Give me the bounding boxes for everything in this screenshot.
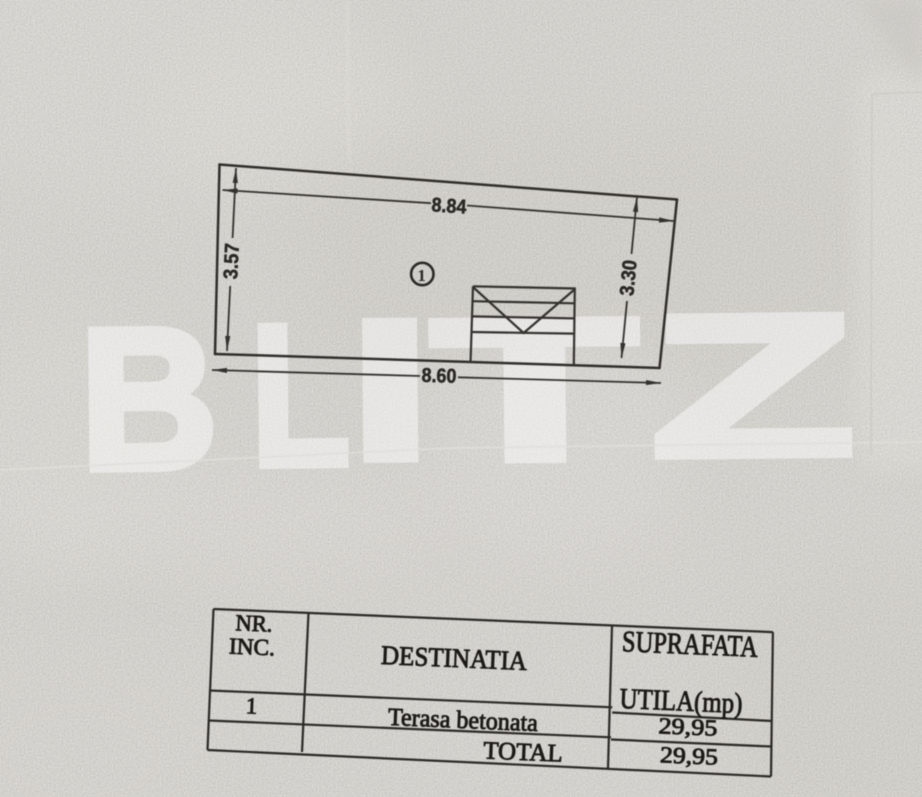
svg-text:TOTAL: TOTAL xyxy=(483,737,564,767)
svg-text:NR.: NR. xyxy=(235,610,273,637)
svg-text:SUPRAFATA: SUPRAFATA xyxy=(621,625,759,664)
svg-text:3.57: 3.57 xyxy=(220,243,244,280)
svg-text:B: B xyxy=(79,286,219,512)
svg-text:1: 1 xyxy=(245,693,258,718)
svg-text:DESTINATIA: DESTINATIA xyxy=(380,640,528,676)
svg-text:T: T xyxy=(431,276,639,503)
svg-text:L: L xyxy=(250,282,351,508)
svg-text:8.84: 8.84 xyxy=(431,194,468,218)
svg-text:8.60: 8.60 xyxy=(421,365,457,388)
svg-text:29,95: 29,95 xyxy=(658,713,718,740)
svg-text:29,95: 29,95 xyxy=(660,742,719,769)
svg-text:Terasa betonata: Terasa betonata xyxy=(388,704,539,737)
svg-text:INC.: INC. xyxy=(228,634,275,661)
svg-text:Z: Z xyxy=(649,272,855,499)
svg-text:3.30: 3.30 xyxy=(616,259,641,297)
svg-text:1: 1 xyxy=(417,266,426,285)
